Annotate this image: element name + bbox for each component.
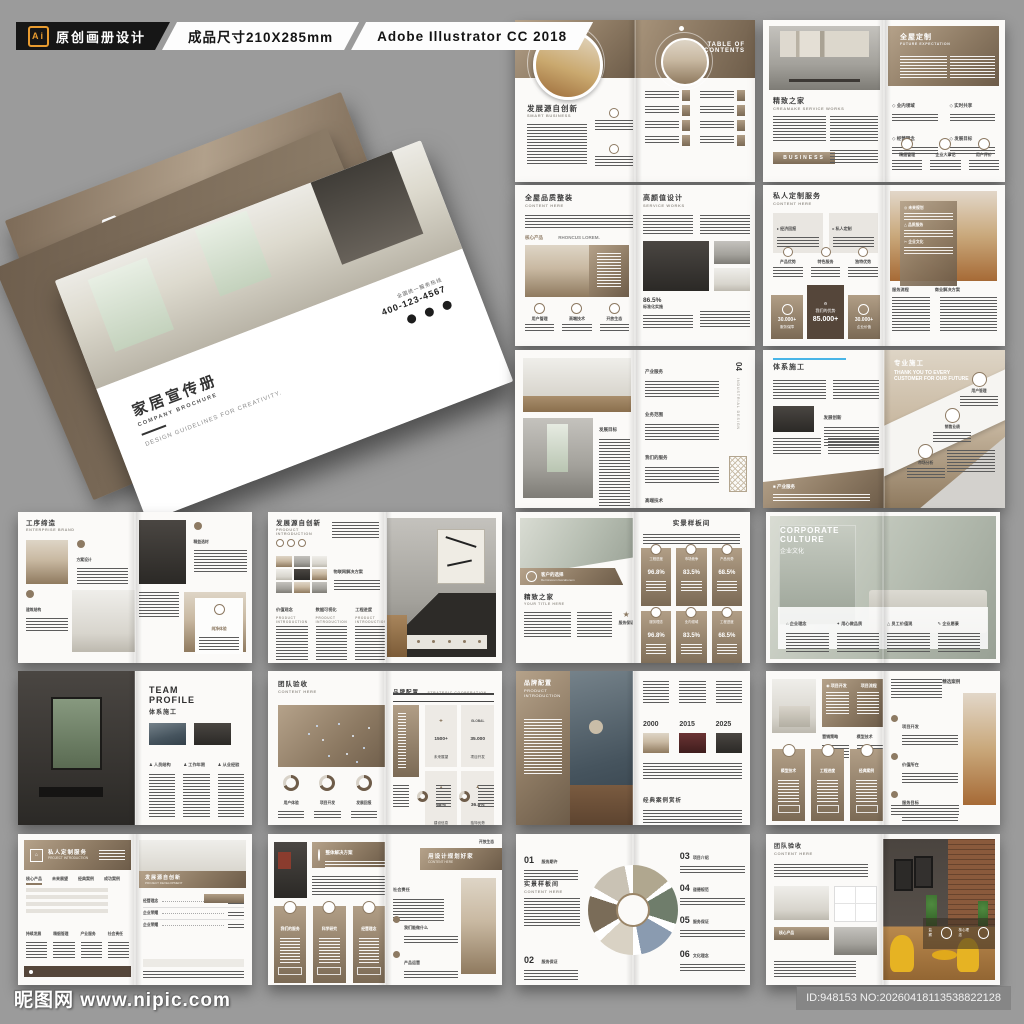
- mini-photo: [294, 569, 310, 580]
- placeholder-lines: [679, 681, 705, 703]
- dark-table: [39, 787, 103, 798]
- donut-item: 发展回报: [351, 775, 377, 819]
- spread-d-right-page: ◎ 未来规划 △ 品质服务 ✂ 企业文化 服务流程 商业解决方案: [884, 185, 1005, 346]
- mini-donut: [417, 791, 428, 802]
- spread-q-left-title: 实景样板间: [524, 882, 580, 889]
- stat-grid: ✚1500+未来展望 GLOBAL35.000项目开发 ▲68%建设信息 ♟36…: [425, 705, 494, 825]
- donut-item: 项目开发: [314, 775, 340, 819]
- spread-c-left-page: 全屋品质整装 CONTENT HERE 核心产品 RHONCUS LOREM. …: [515, 185, 635, 346]
- placeholder-lines: [643, 534, 740, 544]
- wood-texture-block: [387, 615, 407, 657]
- mini-photo: [276, 582, 292, 593]
- spread-j-thumbnail: CORPORATE CULTURE 企业文化 ⌂ 企业理念 ✦ 用心做品质 △ …: [766, 512, 1000, 663]
- analysis-icon: [918, 444, 933, 459]
- placeholder-lines: [828, 438, 879, 454]
- philosophy-icon: [362, 901, 375, 914]
- stat-box-center: ⚙我们的优势 85.000+: [807, 285, 844, 339]
- placeholder-lines: [143, 971, 244, 979]
- placeholder-lines: [891, 805, 959, 817]
- stat-icon: [651, 607, 662, 618]
- timeline-item: 2025: [716, 713, 742, 753]
- placeholder-lines: [643, 810, 742, 824]
- page-number-rail: 04 INDUSTRIAL DESIGN: [729, 362, 747, 430]
- placeholder-lines: [645, 467, 719, 483]
- spread-n-left-page: ◉ 项目开发 项目流程 营销策略 模型技术 模型技术: [766, 671, 883, 825]
- circle-icon: [298, 539, 306, 547]
- spread-c-right-page: 高颜值设计 SERVICE WORKS 86.5% 标准化实施: [635, 185, 755, 346]
- responsibility-label: 社会责任: [393, 887, 410, 892]
- circle-icon: [287, 539, 295, 547]
- model-icon: [782, 744, 795, 757]
- iot-label: 物联网解决方案: [334, 569, 363, 574]
- feature-item: 用户管理: [525, 303, 554, 333]
- spread-f-left-page: 体系施工 发展创新 ■ 产业服务: [763, 350, 884, 508]
- toc-entry: [700, 90, 747, 101]
- yellow-chair: [890, 935, 915, 972]
- band-label: ■ 产业服务: [773, 484, 795, 490]
- adobe-illustrator-icon: Ai: [28, 26, 49, 47]
- placeholder-lines: [680, 898, 746, 907]
- gray-bars: [26, 888, 108, 914]
- table: [789, 79, 860, 83]
- toc-list: [645, 90, 747, 146]
- donut-chart: [356, 775, 372, 791]
- placeholder-lines: [577, 612, 612, 638]
- photo-office-wide: [523, 358, 631, 412]
- spread-o-left-subtitle: PROJECT INTRODUCTION: [48, 856, 88, 860]
- placeholder-lines: [194, 550, 248, 572]
- tab-row: 核心产品 未来展望 经典案例 成功案例: [26, 876, 120, 885]
- item-01: 01 服务期许: [524, 850, 578, 880]
- text-column: 发展目标: [599, 418, 630, 508]
- material-icon: [26, 590, 34, 598]
- spread-b-right-title: 全屋定制: [900, 34, 950, 42]
- card-button: [778, 805, 800, 813]
- header-band: ⌂ 私人定制服务 PROJECT INTRODUCTION: [24, 840, 131, 870]
- right-top-label: 精选案例: [942, 679, 960, 685]
- stat-box-right: 30.000+企业价值: [848, 295, 880, 339]
- brown-banner: ◉ 项目开发 项目流程: [822, 679, 883, 727]
- spread-d-left-title: 私人定制服务: [773, 193, 821, 201]
- brown-overlay-panel: 品牌配置 PRODUCT INTRODUCTION: [516, 671, 570, 825]
- double-rule: [393, 693, 494, 702]
- spread-b-right-page: 全屋定制 FUTURE EXPECTATION ◇ 业内领域 ◇ 实时共享 ◇ …: [884, 20, 1005, 182]
- header-ribbon-software: Adobe Illustrator CC 2018: [351, 22, 593, 50]
- spread-i-left-subtitle: YOUR TITLE HERE: [524, 602, 565, 606]
- header-label-software: Adobe Illustrator CC 2018: [377, 29, 567, 44]
- placeholder-lines: [524, 719, 562, 775]
- label-column: 精细管理: [53, 922, 74, 958]
- title-block: 发展源自创新 SMART BUSINESS: [527, 104, 578, 118]
- philosophy-card: 经营理念: [353, 906, 385, 983]
- trophy-icon: ★: [623, 610, 630, 619]
- spread-e-right-page: 产业服务 业务范围 我们的服务 高端技术 04 INDUSTRIAL DESIG…: [635, 350, 755, 508]
- bullet-item: 项目开发: [891, 715, 959, 745]
- stat-icon: [686, 607, 697, 618]
- total-bar: [143, 959, 244, 967]
- label-column: 社会责任: [108, 922, 129, 958]
- icon-row: [276, 539, 321, 547]
- stat-boxes: 30.000+服务保障 ⚙我们的优势 85.000+ 30.000+企业价值: [771, 285, 880, 339]
- placeholder-lines: [393, 785, 409, 807]
- placeholder-lines: [599, 439, 630, 508]
- mini-stats-row: [393, 785, 494, 807]
- mini-grid: 核心产品: [774, 886, 877, 955]
- timeline-photo: [679, 733, 705, 753]
- spread-r-left-subtitle: CONTENT HERE: [774, 851, 813, 856]
- spread-o-left-page: ⌂ 私人定制服务 PROJECT INTRODUCTION 核心产品 未来展望 …: [18, 834, 135, 985]
- spec-card: [834, 886, 877, 922]
- photo-terrace: [525, 245, 629, 297]
- placeholder-lines: [645, 424, 719, 440]
- bullet-item: ◇ 实时共享: [950, 94, 1000, 122]
- choice-ribbon: 客户的选择 Rerminorem faccabonem: [520, 568, 623, 585]
- chat-icon: [821, 247, 831, 257]
- bed: [779, 706, 810, 727]
- placeholder-lines: [933, 432, 971, 442]
- spread-i-thumbnail: 客户的选择 Rerminorem faccabonem 精致之家 YOUR TI…: [516, 512, 750, 663]
- art-wall: [780, 31, 869, 57]
- process-card: 工程进度: [811, 749, 844, 821]
- placeholder-lines: [595, 120, 633, 132]
- spread-q-thumbnail: 01 服务期许 实景样板间 CONTENT HERE 02 服务保证 03项目介…: [516, 834, 750, 985]
- spread-m-left-title: 品牌配置: [524, 681, 561, 688]
- spread-f-thumbnail: 体系施工 发展创新 ■ 产业服务 专业施工 THANK YOU TO EVERY…: [763, 350, 1005, 508]
- feature-row: 精细管理 企业大事记 用户评价: [892, 138, 999, 170]
- banner-left-label: ◉ 项目开发: [826, 683, 847, 689]
- spread-g-subtitle: ENTERPRISE BRAND: [26, 528, 75, 532]
- tag-row: 核心产品 RHONCUS LOREM.: [525, 235, 600, 241]
- feature-item: [594, 144, 634, 168]
- ribbon-sublabel: Rerminorem faccabonem: [541, 578, 575, 582]
- timeline-item: 2000: [643, 713, 669, 753]
- brown-panel: 全屋定制 FUTURE EXPECTATION: [888, 26, 999, 86]
- column-row: 价值观念Product introduction 数据可视化Product in…: [276, 598, 381, 662]
- placeholder-lines: [643, 215, 693, 235]
- tab: 未来展望: [52, 876, 68, 885]
- text-column: 工程进度Product introduction: [355, 598, 385, 662]
- timeline-item: 2015: [679, 713, 705, 753]
- title-block: 精致之家 CREAMAKE SERVICE WORKS: [773, 98, 844, 111]
- placeholder-lines: [891, 679, 942, 699]
- spread-b-left-title: 精致之家: [773, 98, 844, 106]
- step-item: 用户管理: [959, 372, 999, 406]
- office-floor: [523, 396, 631, 412]
- spread-g-right-page: 精益选材 纯净体验: [135, 512, 252, 663]
- spread-r-right-page: 监察 核心理念: [883, 834, 1000, 985]
- placeholder-lines: [857, 692, 879, 714]
- mini-photo-office: [834, 927, 877, 955]
- case-icon: [860, 744, 873, 757]
- feature-item: 高端技术: [562, 303, 591, 333]
- placeholder-lines: [773, 438, 821, 454]
- process-card: 模型技术: [772, 749, 805, 821]
- text-column: 价值观念Product introduction: [276, 598, 308, 662]
- placeholder-lines: [325, 861, 385, 869]
- stat-card: 工程进度96.8%: [641, 548, 671, 606]
- header-bar: Ai 原创画册设计 成品尺寸210X285mm Adobe Illustrato…: [16, 22, 593, 50]
- section-label: 发展创新: [824, 415, 842, 420]
- card-button: [817, 805, 839, 813]
- photo-living-white: [72, 590, 135, 652]
- headset-icon: [858, 247, 868, 257]
- bullet-item: 产品运营: [393, 951, 459, 979]
- photo-livingroom: [714, 268, 750, 291]
- bullet-item: 我们能做什么: [393, 916, 459, 944]
- timeline-photo: [643, 733, 669, 753]
- placeholder-lines: [26, 618, 68, 632]
- nipic-watermark: 昵图网 www.nipic.com: [14, 985, 231, 1012]
- price-button: [204, 894, 244, 903]
- classic-cases-title: 经典案例赏析: [643, 798, 682, 804]
- spread-i-right-page: 实景样板间 工程进度96.8% 市场竞争83.5% 产品优势68.5%: [633, 512, 750, 663]
- people-icon: [526, 571, 537, 582]
- page-label: INDUSTRIAL DESIGN: [736, 378, 740, 430]
- management-icon: [901, 138, 913, 150]
- stat-cell: GLOBAL35.000项目开发: [461, 705, 494, 767]
- tag-marker-icon: [978, 927, 989, 939]
- title-block: 品牌配置 PRODUCT INTRODUCTION: [524, 681, 561, 698]
- placeholder-lines: [904, 247, 953, 254]
- corner-label: 开放生态: [479, 840, 494, 845]
- spread-g-thumbnail: 工序缔造 ENTERPRISE BRAND 方案设计 建筑结构 精益选材: [18, 512, 252, 663]
- placeholder-lines: [77, 568, 128, 584]
- spread-o-right-subtitle: PROJECT DEVELOPMENT: [145, 881, 240, 885]
- placeholder-lines: [334, 580, 381, 592]
- photo-wheel-infographic: [588, 865, 678, 955]
- process-card: 经典案例: [850, 749, 883, 821]
- title-block: 全屋定制 FUTURE EXPECTATION: [900, 34, 950, 46]
- spread-o-thumbnail: ⌂ 私人定制服务 PROJECT INTRODUCTION 核心产品 未来展望 …: [18, 834, 252, 985]
- photo-shelf-dark: [139, 520, 186, 584]
- stat-icon: [651, 544, 662, 555]
- mini-photo: [276, 556, 292, 567]
- culture-item: △ 员工价值观: [887, 612, 930, 644]
- spread-i-left-page: 客户的选择 Rerminorem faccabonem 精致之家 YOUR TI…: [516, 512, 633, 663]
- rocket-icon: [609, 303, 620, 314]
- spread-g-title: 工序缔造: [26, 520, 75, 528]
- cover-contact-block: 全国统一服务热线 400-123-4567: [377, 276, 453, 332]
- bullet-item: ◇ 业内领域: [892, 94, 942, 122]
- title-block: 全屋品质整装 CONTENT HERE: [525, 195, 573, 208]
- stat-box-left: 30.000+服务保障: [771, 295, 803, 339]
- brand-icon: [609, 108, 619, 118]
- toc-entry: [645, 135, 692, 146]
- section-stack: 产业服务 业务范围 我们的服务 高端技术: [645, 360, 719, 508]
- spread-o-right-page: 发展源自创新 PROJECT DEVELOPMENT 经营理念 企业荣耀 企业荣…: [135, 834, 252, 985]
- spread-l-left-subtitle: CONTENT HERE: [278, 689, 317, 694]
- bottom-paragraphs: [892, 297, 997, 333]
- mini-photo: [312, 569, 328, 580]
- yellow-table: [932, 950, 957, 960]
- stat-card: 产品优势68.5%: [712, 548, 742, 606]
- photo-staircase-art: [387, 518, 496, 657]
- card-button: [317, 967, 341, 975]
- title-block: 私人定制服务 CONTENT HERE: [773, 193, 821, 206]
- photo-bedroom: [714, 241, 750, 264]
- bullet-icon: [891, 715, 898, 722]
- medal-icon: [782, 304, 793, 315]
- banner-labels: ◉ 项目开发 项目流程: [826, 683, 879, 689]
- tab-active: 核心产品: [26, 876, 42, 885]
- bullet-item: 价值所在: [891, 753, 959, 783]
- stat-card: 工程进度68.5%: [712, 611, 742, 663]
- spread-c-left-subtitle: CONTENT HERE: [525, 203, 573, 208]
- stat-icon: [721, 607, 732, 618]
- spread-m-right-page: 2000 2015 2025 经典案例赏析: [633, 671, 750, 825]
- photo-hallway: [461, 878, 496, 974]
- placeholder-lines: [436, 785, 452, 807]
- photo-dining-room: [769, 26, 880, 90]
- placeholder-lines: [700, 311, 750, 329]
- price-row: 企业荣耀: [143, 908, 244, 920]
- spread-q-left-subtitle: CONTENT HERE: [524, 889, 580, 894]
- spread-h-thumbnail: 发展源自创新 PRODUCT INTRODUCTION 物联网解决方案: [268, 512, 502, 663]
- pin-icon: [571, 303, 582, 314]
- business-button: BUSINESS: [773, 152, 835, 164]
- feature-item: 精益选材: [194, 522, 248, 572]
- spread-d-left-subtitle: CONTENT HERE: [773, 201, 821, 206]
- toc-entry: [645, 105, 692, 116]
- title-block: 高颜值设计 SERVICE WORKS: [643, 195, 685, 208]
- placeholder-lines: [773, 116, 826, 142]
- spread-a-left-subtitle: SMART BUSINESS: [527, 113, 578, 118]
- placeholder-lines: [527, 124, 587, 164]
- spread-k-left-page: [18, 671, 135, 825]
- window-greenery: [53, 699, 100, 768]
- spread-l-left-page: 团队验收 CONTENT HERE 用户体验 项目开发 发展回报: [268, 671, 385, 825]
- spread-b-right-subtitle: FUTURE EXPECTATION: [900, 42, 950, 46]
- leather-sofa: [570, 785, 633, 825]
- spread-p-thumbnail: 整体解决方案 我们的服务 科学研究: [268, 834, 502, 985]
- spread-f-right-page: 专业施工 THANK YOU TO EVERY CUSTOMER FOR OUR…: [884, 350, 1005, 508]
- card-button: [278, 967, 302, 975]
- spread-r-thumbnail: 团队验收 CONTENT HERE 核心产品: [766, 834, 1000, 985]
- art-stroke: [448, 559, 473, 566]
- tab: 成功案例: [104, 876, 120, 885]
- placeholder-lines: [947, 450, 995, 474]
- framed-art: [437, 529, 485, 584]
- mini-photo-grid: [276, 556, 327, 593]
- gear-icon: [783, 247, 793, 257]
- spread-a-left-title: 发展源自创新: [527, 104, 578, 113]
- user-icon: [978, 138, 990, 150]
- placeholder-lines: [826, 692, 848, 714]
- spread-e-thumbnail: 发展目标 产业服务 业务范围 我们的服务 高端技术 04 INDUSTRIAL …: [515, 350, 755, 508]
- placeholder-lines: [199, 637, 239, 651]
- cover-title-block: 家居宣传册 COMPANY BROCHURE DESIGN GUIDELINES…: [130, 352, 284, 450]
- card-button: [357, 967, 381, 975]
- bullet-icon: [891, 753, 898, 760]
- title-cn: 企业文化: [780, 546, 840, 555]
- feature-item: 方案设计: [77, 540, 128, 584]
- bullet-icon: [393, 951, 400, 958]
- placeholder-lines: [904, 230, 953, 237]
- title-block: 精致之家 YOUR TITLE HERE: [524, 594, 565, 606]
- timeline-photo: [716, 733, 742, 753]
- cover-photo-window: [88, 257, 174, 351]
- placeholder-lines: [773, 494, 870, 502]
- title-block: CORPORATE CULTURE 企业文化: [780, 526, 840, 555]
- culture-item: ✎ 企业愿景: [938, 612, 981, 644]
- tag-band: 监察 核心理念: [923, 918, 995, 949]
- image-id-badge: ID:948153 NO:20260418113538822128: [797, 987, 1010, 1009]
- placeholder-lines: [907, 468, 945, 478]
- tag-label: 核心理念: [958, 928, 971, 938]
- design-icon: [77, 540, 85, 548]
- item-05: 05服务保证: [680, 910, 746, 939]
- research-icon: [323, 901, 336, 914]
- photo-tv-wall: [773, 406, 814, 432]
- placeholder-lines: [524, 870, 578, 880]
- wall-clock: [589, 720, 603, 734]
- placeholder-lines: [643, 763, 742, 781]
- feature-item: 独特优势: [848, 247, 878, 279]
- tab: 经典案例: [78, 876, 94, 885]
- photo-loft: ◎ 未来规划 △ 品质服务 ✂ 企业文化: [890, 191, 997, 281]
- placeholder-lines: [700, 215, 750, 235]
- stat-label: 标准化实施: [643, 304, 663, 310]
- title-block: TEAM PROFILE 体系施工: [149, 685, 195, 717]
- placeholder-lines: [904, 213, 953, 220]
- item-06: 06文化理念: [680, 944, 746, 973]
- label-column: 产业服务: [81, 922, 102, 958]
- mini-donut: [459, 791, 470, 802]
- purity-icon: [214, 604, 225, 615]
- stat-icon: [686, 544, 697, 555]
- service-icon: [609, 144, 619, 154]
- white-card: 纯净体验: [195, 598, 243, 654]
- spread-c-right-title: 高颜值设计: [643, 195, 685, 203]
- core-product-chip: 核心产品: [774, 927, 829, 940]
- bullet-icon: [393, 916, 400, 923]
- window: [547, 424, 568, 472]
- spread-p-right-page: 开放生态 用设计规划好家 CONTENT HERE 社会责任 我们能做什么 产品…: [385, 834, 502, 985]
- donut-chart: [319, 775, 335, 791]
- timeline-row: 2000 2015 2025: [643, 713, 742, 753]
- mini-photo: [294, 582, 310, 593]
- photo-blue-wall: [570, 671, 633, 825]
- column-row: ♟ 人员结构 ♟ 工作年限 ♟ 从业经验: [149, 753, 244, 818]
- spread-l-left-title: 团队验收: [278, 681, 317, 689]
- toc-entry: [645, 90, 692, 101]
- diagonal-brown-band: ■ 产业服务: [763, 468, 884, 508]
- spread-e-left-page: 发展目标: [515, 350, 635, 508]
- header-ribbon-size: 成品尺寸210X285mm: [162, 22, 359, 50]
- mini-photo-living: [774, 886, 829, 920]
- placeholder-lines: [99, 850, 125, 860]
- placeholder-lines: [773, 380, 826, 400]
- placeholder-lines: [960, 396, 998, 406]
- spread-p-left-page: 整体解决方案 我们的服务 科学研究: [268, 834, 385, 985]
- culture-item: ✦ 用心做品质: [837, 612, 880, 644]
- strip-dot: [29, 970, 33, 974]
- placeholder-lines: [525, 215, 633, 229]
- placeholder-lines: [680, 964, 746, 973]
- spread-m-thumbnail: 品牌配置 PRODUCT INTRODUCTION 2000 2015 2025: [516, 671, 750, 825]
- overlay-card: ◎ 未来规划 △ 品质服务 ✂ 企业文化: [900, 201, 957, 286]
- core-product-tag: 核心产品: [525, 235, 543, 240]
- photo-lobby-cactus: [520, 518, 633, 576]
- title-block: 团队验收 CONTENT HERE: [774, 844, 813, 856]
- spread-c-thumbnail: 全屋品质整装 CONTENT HERE 核心产品 RHONCUS LOREM. …: [515, 185, 755, 346]
- photo-dining: [523, 418, 593, 498]
- feature-item: 产品优势: [773, 247, 803, 279]
- feature-item: 特色服务: [811, 247, 841, 279]
- stat-card: 业内领域83.5%: [676, 611, 706, 663]
- placeholder-lines: [524, 898, 580, 928]
- donut-item: 用户体验: [278, 775, 304, 819]
